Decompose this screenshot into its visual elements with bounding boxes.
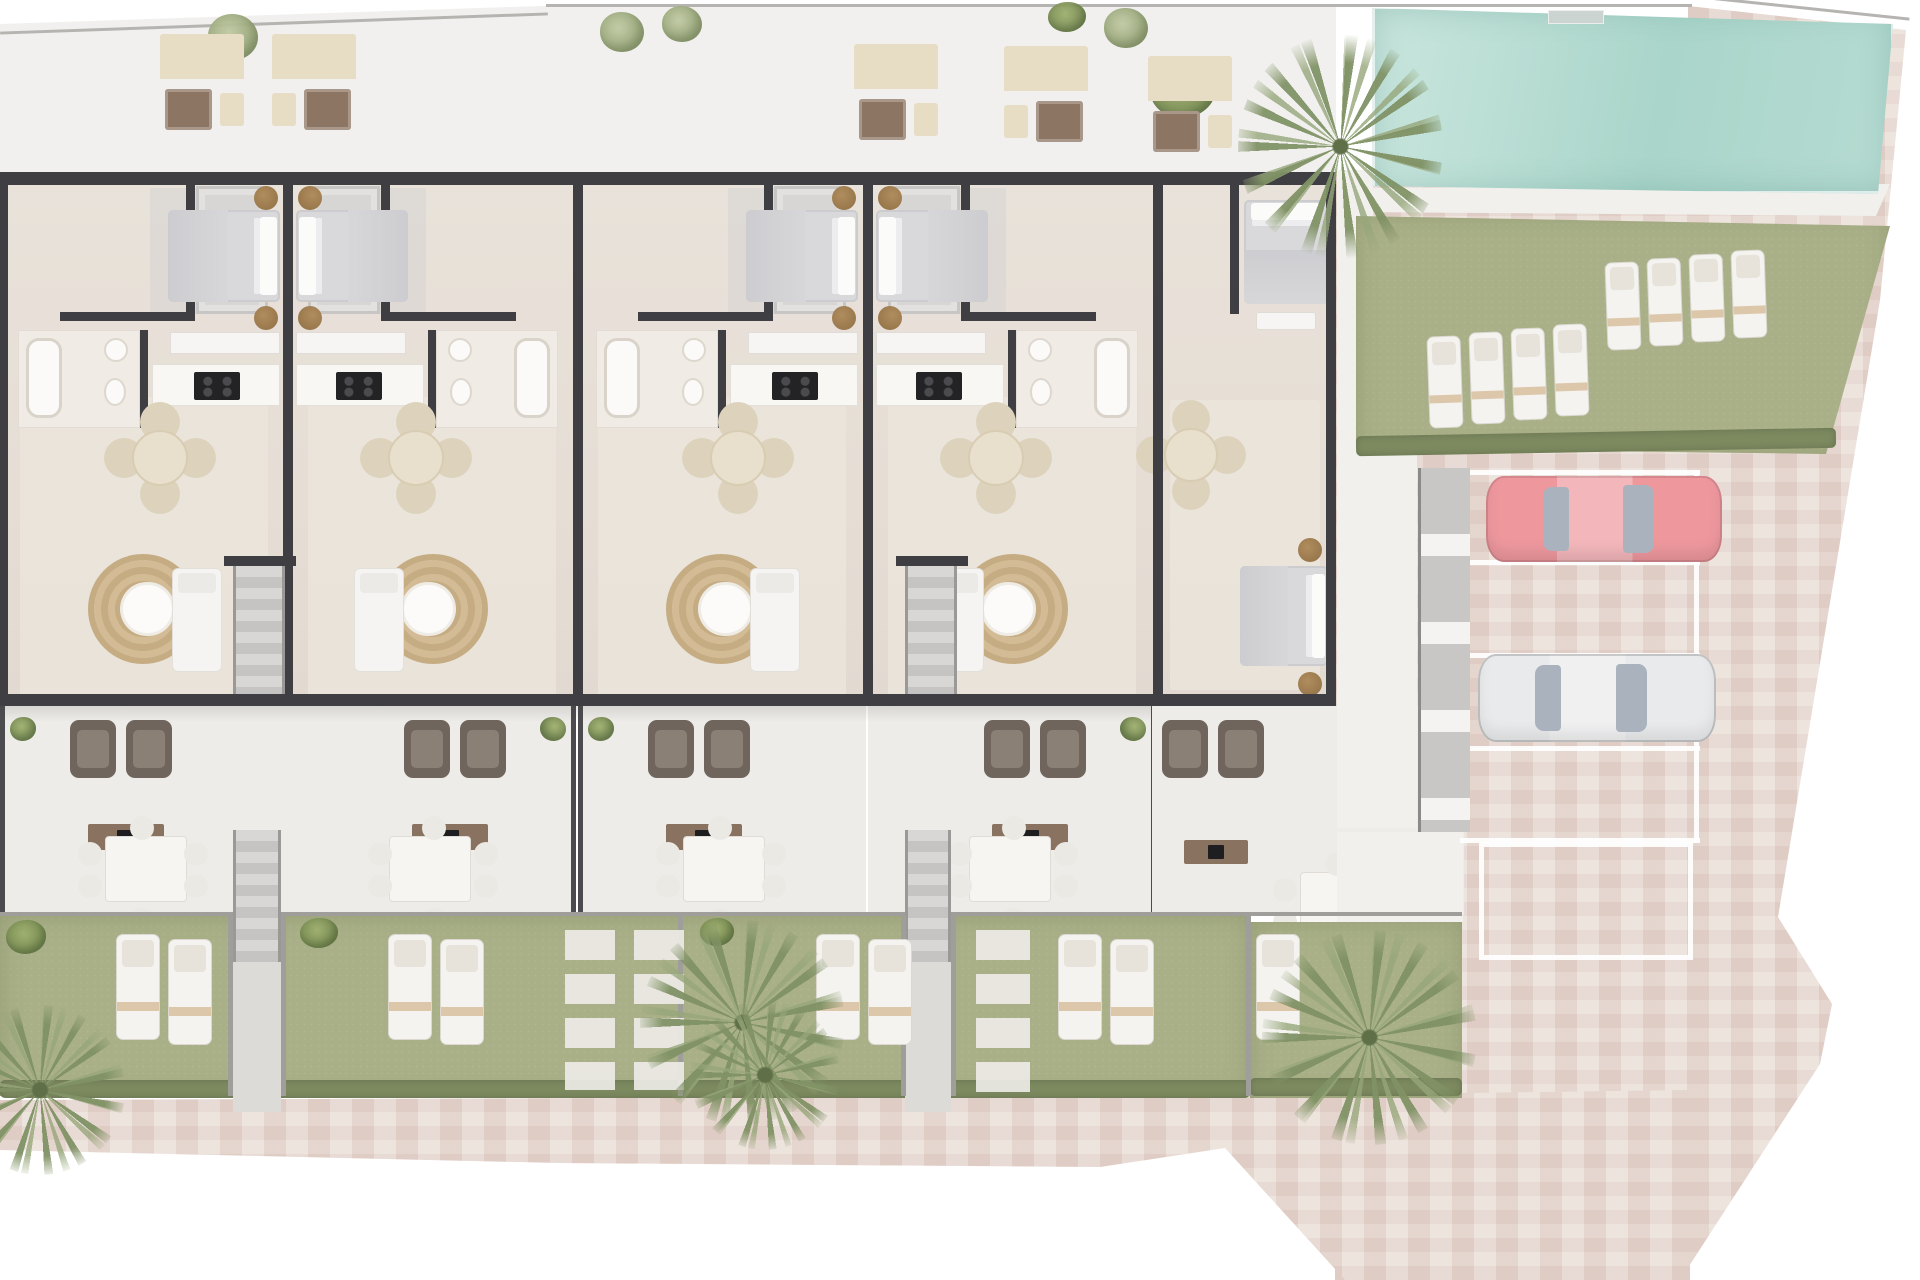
unit-4-wardrobe: [876, 332, 986, 354]
unit-3-bathtub: [604, 338, 640, 418]
side-walkway: [1337, 452, 1417, 828]
garden-hedge: [0, 1080, 1250, 1098]
unit-1-wardrobe: [170, 332, 280, 354]
nightstand: [1298, 672, 1322, 696]
unit-3-washbasin: [682, 338, 706, 362]
unit-4-cooktop: [916, 372, 962, 400]
unit-4-terrace-armchair: [1040, 720, 1086, 778]
parking-line: [1460, 746, 1700, 751]
unit-3-dining-table-set: [710, 430, 766, 486]
storage-units: [1418, 468, 1470, 832]
garden-palm: [1262, 930, 1477, 1145]
floor-plan: [0, 0, 1920, 1280]
terrace-tree: [662, 6, 702, 42]
unit-3-double-bed: [746, 210, 858, 302]
unit-1-nightstand: [254, 186, 278, 210]
roof-lounge-set: [854, 44, 938, 142]
unit-1-double-bed: [168, 210, 280, 302]
unit-2-washbasin: [448, 338, 472, 362]
party-wall: [1153, 172, 1163, 706]
unit-4-bedroom-wall-h: [961, 312, 1096, 321]
unit-3-cooktop: [772, 372, 818, 400]
unit-4-nightstand: [878, 306, 902, 330]
stair-core-wall: [896, 556, 968, 566]
unit-2-wardrobe: [296, 332, 406, 354]
garden-lounger: [440, 939, 484, 1045]
unit-1-living-sofa: [172, 568, 222, 672]
unit-3-nightstand: [832, 186, 856, 210]
unit-2-terrace-divider: [571, 706, 576, 915]
unit-2-bedroom-wall-h: [381, 312, 516, 321]
building-shadow: [0, 706, 1336, 722]
nightstand: [1298, 538, 1322, 562]
unit-4-bath-wall-v: [1008, 330, 1016, 428]
pool-lounger: [1426, 335, 1463, 428]
terrace-armchair: [1162, 720, 1208, 778]
party-wall: [573, 172, 583, 706]
end-unit-bench: [1256, 312, 1316, 330]
terrace-tree: [600, 12, 644, 52]
garden-divider: [228, 916, 233, 1096]
unit-2-dining-table-set: [388, 430, 444, 486]
terrace-tree: [1104, 8, 1148, 48]
unit-1-cooktop: [194, 372, 240, 400]
unit-4-terrace-armchair: [984, 720, 1030, 778]
facade-wall-bottom: [0, 694, 1336, 706]
stair-core: [233, 566, 285, 694]
unit-3-terrace-divider: [578, 706, 583, 915]
unit-1-nightstand: [254, 306, 278, 330]
unit-4-double-bed: [876, 210, 988, 302]
unit-1-bath-wall-v: [140, 330, 148, 428]
terrace-armchair: [1218, 720, 1264, 778]
unit-2-nightstand: [298, 306, 322, 330]
unit-4-nightstand: [878, 186, 902, 210]
unit-2-bath-wall-v: [428, 330, 436, 428]
garden-stairs: [233, 830, 281, 962]
garden-lounger: [868, 939, 912, 1045]
roof-lounge-set: [1004, 46, 1088, 144]
pool-steps: [1548, 10, 1604, 24]
stair-core: [905, 566, 957, 694]
garden-lounger: [116, 934, 160, 1040]
pool-lounger: [1730, 249, 1767, 338]
unit-1-terrace-armchair: [126, 720, 172, 778]
garden-lounger: [168, 939, 212, 1045]
pool-palm: [1238, 34, 1443, 259]
garden-divider: [281, 916, 286, 1096]
garden-divider: [1246, 916, 1251, 1096]
unit-1-dining-table-set: [132, 430, 188, 486]
white-car: [1478, 654, 1716, 742]
unit-2-terrace-armchair: [404, 720, 450, 778]
plot-boundary-line: [546, 4, 1692, 7]
swimming-pool: [1372, 6, 1894, 194]
empty-parking-space: [1479, 842, 1693, 960]
unit-3-wardrobe: [748, 332, 858, 354]
unit-1-terrace-divider: [0, 706, 5, 915]
unit-4-washbasin: [1028, 338, 1052, 362]
unit-2-toilet: [450, 378, 472, 406]
unit-3-nightstand: [832, 306, 856, 330]
pool-lounger: [1468, 331, 1505, 424]
unit-1-bathtub: [26, 338, 62, 418]
unit-3-toilet: [682, 378, 704, 406]
unit-2-double-bed: [296, 210, 408, 302]
roof-lounge-set: [1148, 56, 1232, 154]
party-wall: [0, 172, 8, 706]
pool-lounger: [1688, 253, 1725, 342]
garden-lounger: [388, 934, 432, 1040]
end-unit-wall: [1230, 184, 1239, 314]
unit-1-toilet: [104, 378, 126, 406]
unit-2-living-sofa: [354, 568, 404, 672]
unit-3-outdoor-dining-set: [683, 836, 765, 902]
garden-palm: [690, 1000, 840, 1150]
garden-path: [233, 962, 281, 1112]
pool-lounger: [1604, 261, 1641, 350]
unit-1-washbasin: [104, 338, 128, 362]
pool-lounger: [1552, 323, 1589, 416]
garden-lounger: [1058, 934, 1102, 1040]
end-unit-bed-2: [1240, 566, 1328, 666]
unit-2-terrace-armchair: [460, 720, 506, 778]
unit-4-dining-table-set: [968, 430, 1024, 486]
unit-3-bedroom-wall-h: [638, 312, 773, 321]
unit-1-bedroom-wall-h: [60, 312, 195, 321]
unit-3-living-sofa: [750, 568, 800, 672]
unit-1-terrace-armchair: [70, 720, 116, 778]
end-unit-dining-set: [1164, 428, 1218, 482]
unit-1-outdoor-dining-set: [105, 836, 187, 902]
roof-lounge-set: [160, 34, 244, 132]
unit-2-bathtub: [514, 338, 550, 418]
red-car: [1486, 476, 1722, 562]
garden-stairs: [905, 830, 951, 962]
unit-3-terrace-armchair: [648, 720, 694, 778]
garden-divider: [951, 916, 956, 1096]
unit-4-bathtub: [1094, 338, 1130, 418]
unit-2-cooktop: [336, 372, 382, 400]
tv-sideboard: [1184, 840, 1248, 864]
parking-line: [1460, 470, 1700, 475]
unit-3-bath-wall-v: [718, 330, 726, 428]
stepping-stones: [976, 930, 1030, 1100]
facade-wall-top: [0, 172, 1336, 185]
garden-lounger: [1110, 939, 1154, 1045]
party-wall: [863, 172, 873, 706]
unit-4-outdoor-dining-set: [969, 836, 1051, 902]
unit-2-outdoor-dining-set: [389, 836, 471, 902]
unit-3-terrace-armchair: [704, 720, 750, 778]
unit-2-nightstand: [298, 186, 322, 210]
unit-4-toilet: [1030, 378, 1052, 406]
roof-lounge-set: [272, 34, 356, 132]
end-garden-path: [1337, 832, 1463, 922]
pool-lounger: [1646, 257, 1683, 346]
pool-lounger: [1510, 327, 1547, 420]
stair-core-wall: [224, 556, 296, 566]
stepping-stones: [565, 930, 615, 1090]
